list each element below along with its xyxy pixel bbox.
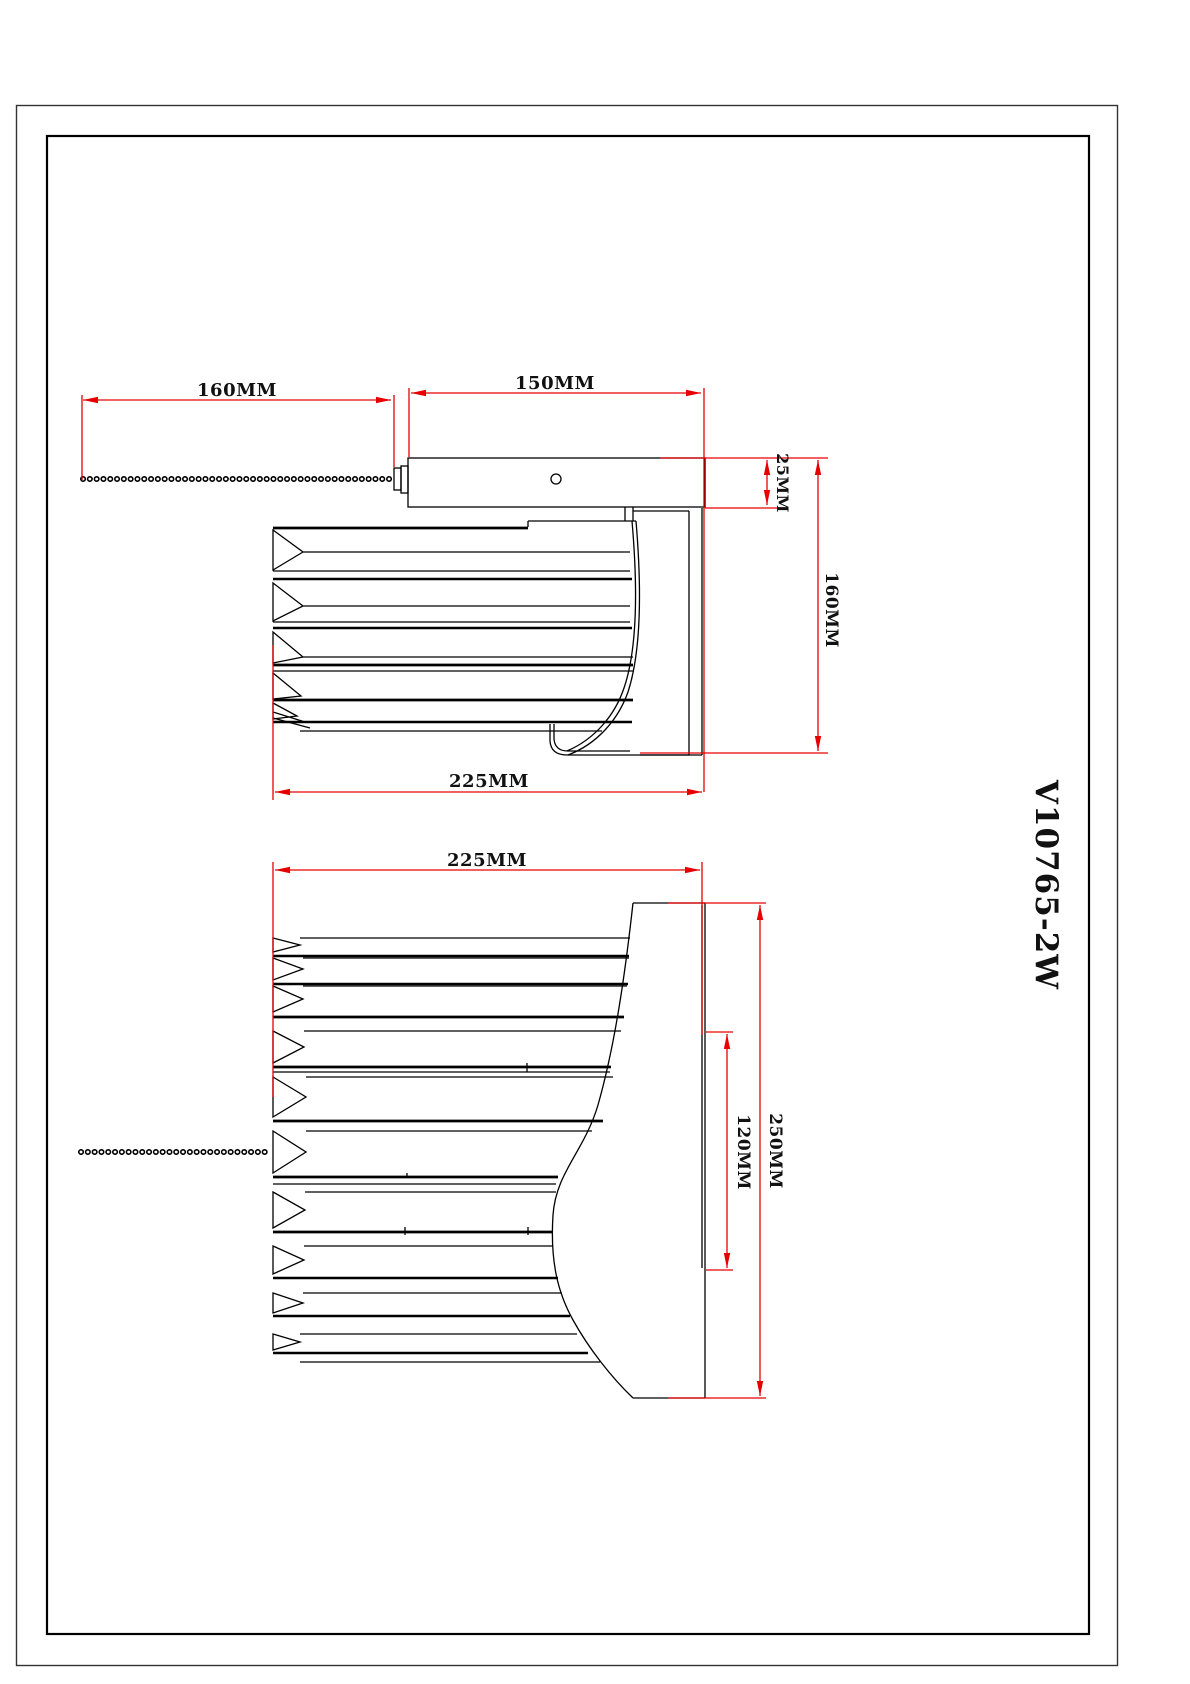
dim-glass-height-label: 120MM [733,1114,753,1190]
side-view-arm [394,458,705,507]
dim-body-height-label: 160MM [821,572,841,648]
dim-chain-length-label: 160MM [197,380,277,401]
side-view-dimensions: 160MM 150MM 25MM 160MM 225MM [82,373,841,800]
front-view-body-curve [552,903,633,1398]
dim-arm-length-label: 150MM [515,373,595,394]
inner-border [47,136,1089,1634]
fin-step-ticks [405,1063,528,1235]
dim-front-body-length-label: 225MM [447,850,527,871]
part-number-label: V10765-2W [1028,779,1064,990]
chain-connector [394,468,401,490]
outer-border [17,106,1118,1666]
arm-screw-hole [551,474,561,484]
front-view: 225MM 120MM 250MM [81,850,785,1398]
side-view-housing-curve [550,521,689,755]
front-view-housing [552,903,705,1398]
side-view-heatsink-fins [273,528,633,731]
side-view: 160MM 150MM 25MM 160MM 225MM [82,373,841,800]
dim-arm-thickness-label: 25MM [773,453,792,513]
chain-connector-collar [401,466,408,493]
dim-overall-height-label: 250MM [765,1113,785,1189]
drawing-sheet: 160MM 150MM 25MM 160MM 225MM [0,0,1190,1684]
technical-drawing: 160MM 150MM 25MM 160MM 225MM [0,0,1190,1684]
front-view-heatsink-fins [273,938,630,1362]
dim-body-length-label: 225MM [449,771,529,792]
